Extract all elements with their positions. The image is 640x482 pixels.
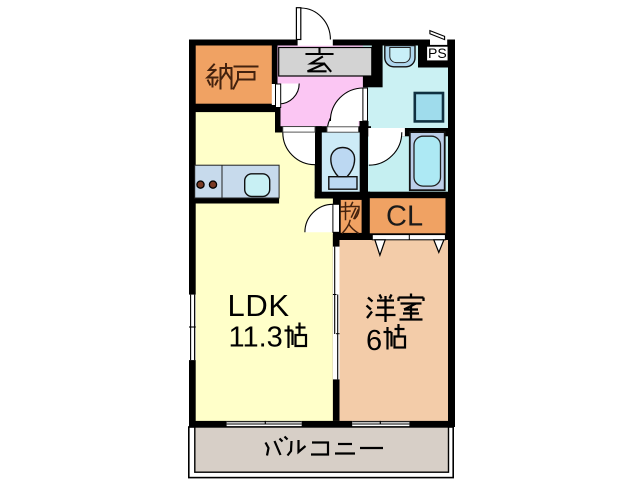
svg-text:LDK: LDK	[228, 288, 290, 323]
svg-text:11.3: 11.3	[229, 321, 283, 353]
svg-text:6: 6	[366, 325, 382, 357]
svg-text:CL: CL	[386, 200, 423, 232]
svg-text:PS: PS	[428, 45, 447, 61]
